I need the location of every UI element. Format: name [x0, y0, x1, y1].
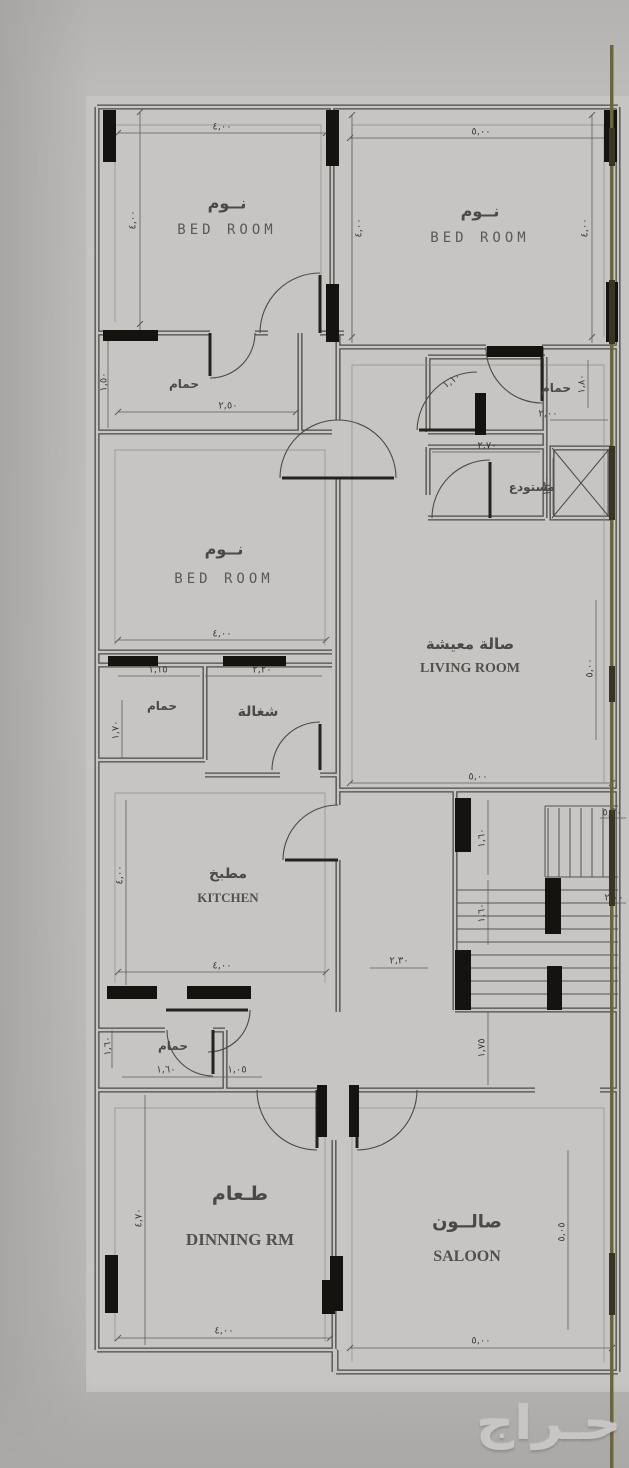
room-label-ar-bathroom-right: حمام — [541, 381, 571, 395]
scan-marker-line — [609, 45, 615, 1468]
dimension-label: ١,٦٠ — [156, 1065, 175, 1076]
dimension-label: ٥,٠٠ — [585, 658, 596, 677]
room-label-en-kitchen: KITCHEN — [197, 890, 258, 906]
scanned-floor-plan-page: نــوم BED ROOM نــوم BED ROOM حمام حمام … — [0, 0, 629, 1468]
dimension-label: ٤,٠٠ — [580, 218, 591, 237]
room-label-ar-saloon: صالــون — [432, 1212, 502, 1233]
dimension-label: ٢,٣٠ — [389, 956, 408, 967]
room-label-ar-maid-bathroom: حمام — [147, 699, 177, 713]
dimension-label: ٤,٠٠ — [214, 1326, 233, 1337]
dimension-label: ١,٦٠ — [477, 903, 488, 922]
room-label-en-bedroom-2: BED ROOM — [430, 230, 529, 246]
dimension-label: ١,١٥ — [148, 665, 167, 676]
dimension-lines — [108, 109, 626, 1351]
room-label-en-saloon: SALOON — [433, 1248, 501, 1266]
dimension-label: ١,٧٥ — [477, 1038, 488, 1057]
room-label-ar-guest-bathroom: حمام — [158, 1039, 188, 1053]
room-label-ar-bathroom-left: حمام — [169, 377, 199, 391]
dimension-label: ١,٦٠ — [103, 1036, 114, 1055]
dimension-label: ٥,٠٠ — [471, 1336, 490, 1347]
dimension-label: ١,٣٠ — [542, 476, 553, 495]
dimension-label: ٥,٠٠ — [471, 127, 490, 138]
room-label-en-living-room: LIVING ROOM — [420, 661, 520, 677]
room-label-ar-dining-room: طـعام — [212, 1183, 268, 1205]
dimension-label: ١,٠٥ — [227, 1065, 246, 1076]
columns — [103, 110, 618, 1314]
dimension-label: ٤,٧٠ — [134, 1208, 145, 1227]
room-label-ar-bedroom-1: نــوم — [208, 194, 247, 213]
dimension-label: ٢,٧٠ — [477, 441, 496, 452]
dimension-label: ٤,٠٠ — [354, 218, 365, 237]
room-label-ar-living-room: صالة معيشة — [426, 635, 514, 653]
shaft-cross — [552, 448, 610, 518]
dimension-label: ١,٨٠ — [577, 374, 588, 393]
room-label-ar-bedroom-3: نــوم — [205, 540, 244, 559]
room-label-ar-maid-room: شغالة — [238, 704, 279, 720]
dimension-label: ٤,٠٠ — [115, 865, 126, 884]
room-label-ar-bedroom-2: نــوم — [461, 202, 500, 221]
haraj-watermark: حـراج — [476, 1396, 621, 1450]
dimension-label: ١,٧٠ — [111, 720, 122, 739]
dimension-label: ٢,٠٠ — [604, 893, 623, 904]
dimension-label: ٢,٠٠ — [538, 409, 557, 420]
dimension-label: ٤,٠٠ — [212, 629, 231, 640]
dimension-label: ٥,٠٠ — [468, 772, 487, 783]
room-label-ar-kitchen: مطبخ — [209, 866, 247, 882]
dimension-label: ٤,٠٠ — [212, 122, 231, 133]
dimension-label: ٤,٠٠ — [128, 210, 139, 229]
dimension-label: ٢,٥٠ — [218, 401, 237, 412]
room-label-en-dining-room: DINNING RM — [186, 1230, 294, 1250]
dimension-label: ٢,٢٠ — [252, 665, 271, 676]
dimension-label: ١,٥٠ — [99, 372, 110, 391]
walls — [97, 107, 618, 1372]
witness-lines — [115, 125, 604, 1362]
floor-plan-drawing — [0, 0, 629, 1468]
dimension-label: ٥,٠٥ — [557, 1222, 568, 1241]
dimension-label: ٤,٠٠ — [212, 961, 231, 972]
dimension-label: ٥,٢٠ — [602, 808, 621, 819]
dimension-label: ١,٦٠ — [477, 828, 488, 847]
room-label-en-bedroom-3: BED ROOM — [174, 571, 273, 587]
room-label-en-bedroom-1: BED ROOM — [177, 222, 276, 238]
